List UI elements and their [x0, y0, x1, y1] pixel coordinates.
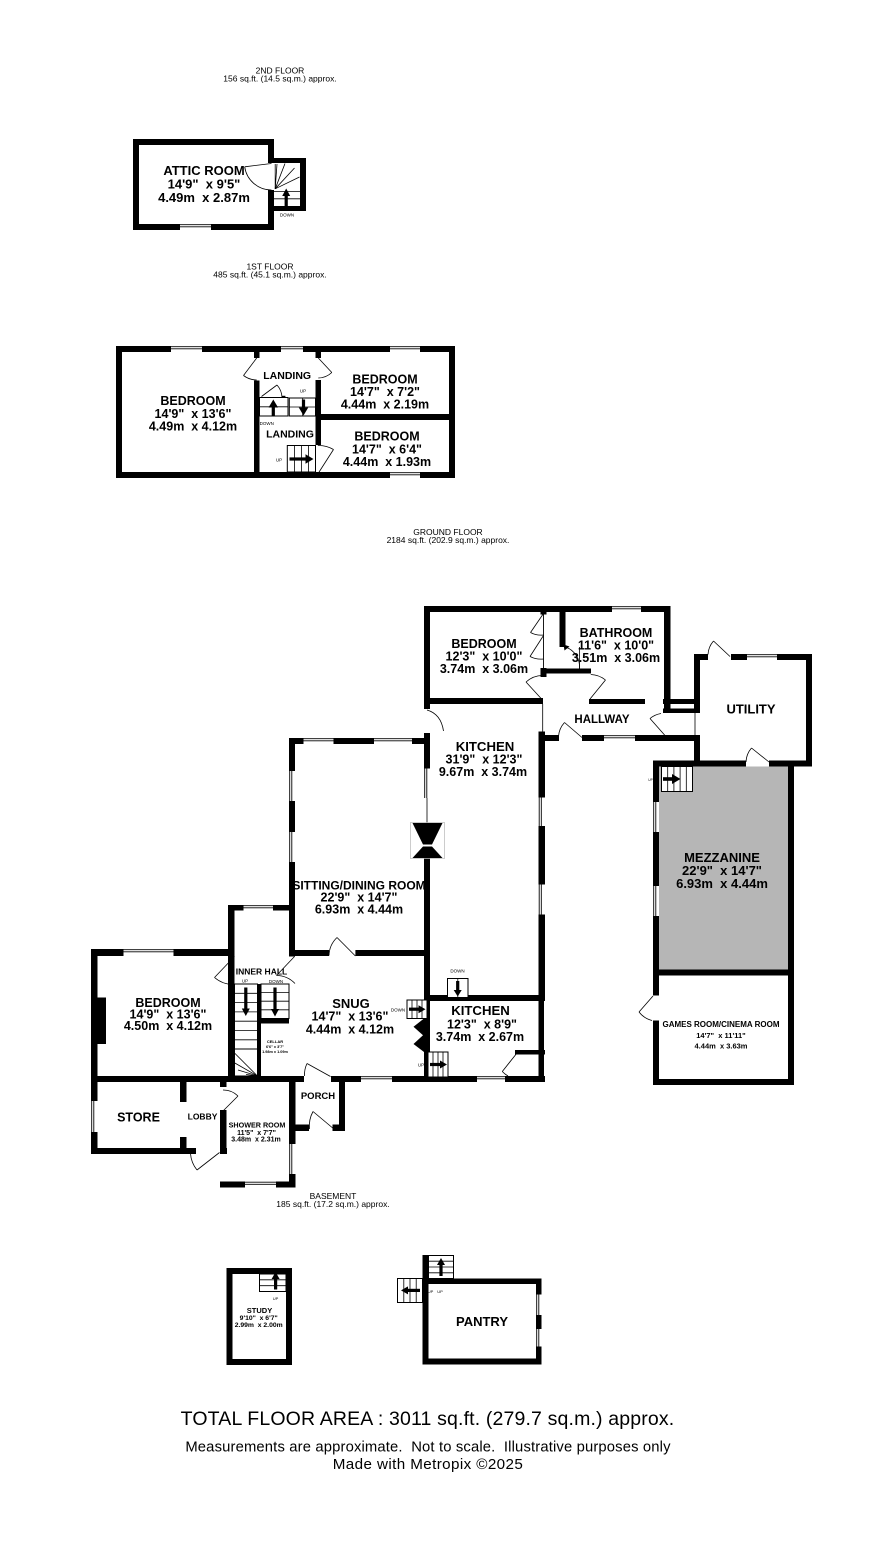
svg-text:6'6" x 3'7": 6'6" x 3'7" [266, 1045, 284, 1049]
svg-text:3.74m x 3.06m: 3.74m x 3.06m [440, 662, 528, 676]
svg-text:185 sq.ft. (17.2 sq.m.) approx: 185 sq.ft. (17.2 sq.m.) approx. [276, 1199, 389, 1209]
svg-text:4.44m x 2.19m: 4.44m x 2.19m [341, 398, 429, 412]
svg-text:KITCHEN: KITCHEN [451, 1003, 510, 1018]
svg-text:DOWN: DOWN [280, 213, 294, 218]
svg-text:SHOWER ROOM: SHOWER ROOM [229, 1121, 286, 1130]
svg-text:14'7" x 11'11": 14'7" x 11'11" [696, 1031, 746, 1040]
svg-text:UP: UP [648, 778, 652, 782]
svg-text:CELLAR: CELLAR [267, 1039, 283, 1044]
svg-text:DOWN: DOWN [260, 421, 274, 426]
svg-text:UP: UP [276, 458, 282, 463]
svg-text:3.48m x 2.31m: 3.48m x 2.31m [231, 1137, 280, 1144]
svg-text:4.49m x 4.12m: 4.49m x 4.12m [149, 420, 237, 434]
svg-text:6.93m x 4.44m: 6.93m x 4.44m [676, 876, 768, 891]
svg-text:Made with Metropix ©2025: Made with Metropix ©2025 [333, 1456, 523, 1473]
svg-text:DOWN: DOWN [450, 969, 464, 974]
svg-text:9.67m x 3.74m: 9.67m x 3.74m [439, 765, 527, 779]
svg-text:9'10" x 6'7": 9'10" x 6'7" [240, 1315, 278, 1322]
svg-text:2.99m x 2.00m: 2.99m x 2.00m [235, 1322, 283, 1329]
svg-text:STORE: STORE [117, 1111, 160, 1125]
svg-text:STUDY: STUDY [247, 1306, 272, 1315]
svg-text:PORCH: PORCH [301, 1091, 335, 1102]
svg-text:2184 sq.ft. (202.9 sq.m.) appr: 2184 sq.ft. (202.9 sq.m.) approx. [387, 535, 510, 545]
svg-text:GAMES ROOM/CINEMA ROOM: GAMES ROOM/CINEMA ROOM [662, 1020, 779, 1029]
svg-text:UP: UP [273, 1296, 279, 1301]
svg-text:BEDROOM: BEDROOM [354, 430, 419, 444]
svg-text:1.98m x 1.09m: 1.98m x 1.09m [262, 1050, 288, 1054]
svg-text:UP: UP [300, 389, 306, 394]
svg-text:LANDING: LANDING [266, 429, 314, 441]
svg-text:4.44m x 1.93m: 4.44m x 1.93m [343, 455, 431, 469]
svg-text:6.93m x 4.44m: 6.93m x 4.44m [315, 903, 403, 917]
svg-text:4.44m x 4.12m: 4.44m x 4.12m [306, 1023, 394, 1037]
svg-text:UP: UP [437, 1289, 443, 1294]
svg-text:LANDING: LANDING [263, 370, 311, 382]
svg-text:UTILITY: UTILITY [726, 702, 775, 717]
svg-text:156 sq.ft. (14.5 sq.m.) approx: 156 sq.ft. (14.5 sq.m.) approx. [223, 74, 336, 84]
svg-text:Measurements are approximate.: Measurements are approximate. Not to sca… [185, 1440, 671, 1456]
svg-text:DOWN: DOWN [269, 979, 283, 984]
svg-text:DOWN: DOWN [391, 1008, 405, 1013]
svg-text:HALLWAY: HALLWAY [574, 714, 629, 726]
svg-text:4.44m x 3.63m: 4.44m x 3.63m [695, 1042, 748, 1051]
svg-text:BEDROOM: BEDROOM [160, 394, 225, 408]
svg-text:3.74m x 2.67m: 3.74m x 2.67m [436, 1030, 524, 1044]
svg-text:4.50m x 4.12m: 4.50m x 4.12m [124, 1019, 212, 1033]
svg-text:14'7" x 13'6": 14'7" x 13'6" [312, 1010, 389, 1024]
svg-text:UP: UP [428, 1289, 434, 1294]
svg-text:4.49m x 2.87m: 4.49m x 2.87m [158, 190, 250, 205]
svg-text:UP: UP [418, 1063, 424, 1068]
svg-text:INNER HALL: INNER HALL [236, 967, 287, 977]
svg-text:LOBBY: LOBBY [188, 1112, 218, 1122]
svg-text:3.51m x 3.06m: 3.51m x 3.06m [572, 651, 660, 665]
svg-text:485 sq.ft. (45.1 sq.m.) approx: 485 sq.ft. (45.1 sq.m.) approx. [213, 270, 326, 280]
svg-text:PANTRY: PANTRY [456, 1314, 508, 1329]
svg-text:UP: UP [242, 979, 248, 984]
svg-text:TOTAL FLOOR AREA : 3011 sq.ft.: TOTAL FLOOR AREA : 3011 sq.ft. (279.7 sq… [181, 1408, 675, 1430]
